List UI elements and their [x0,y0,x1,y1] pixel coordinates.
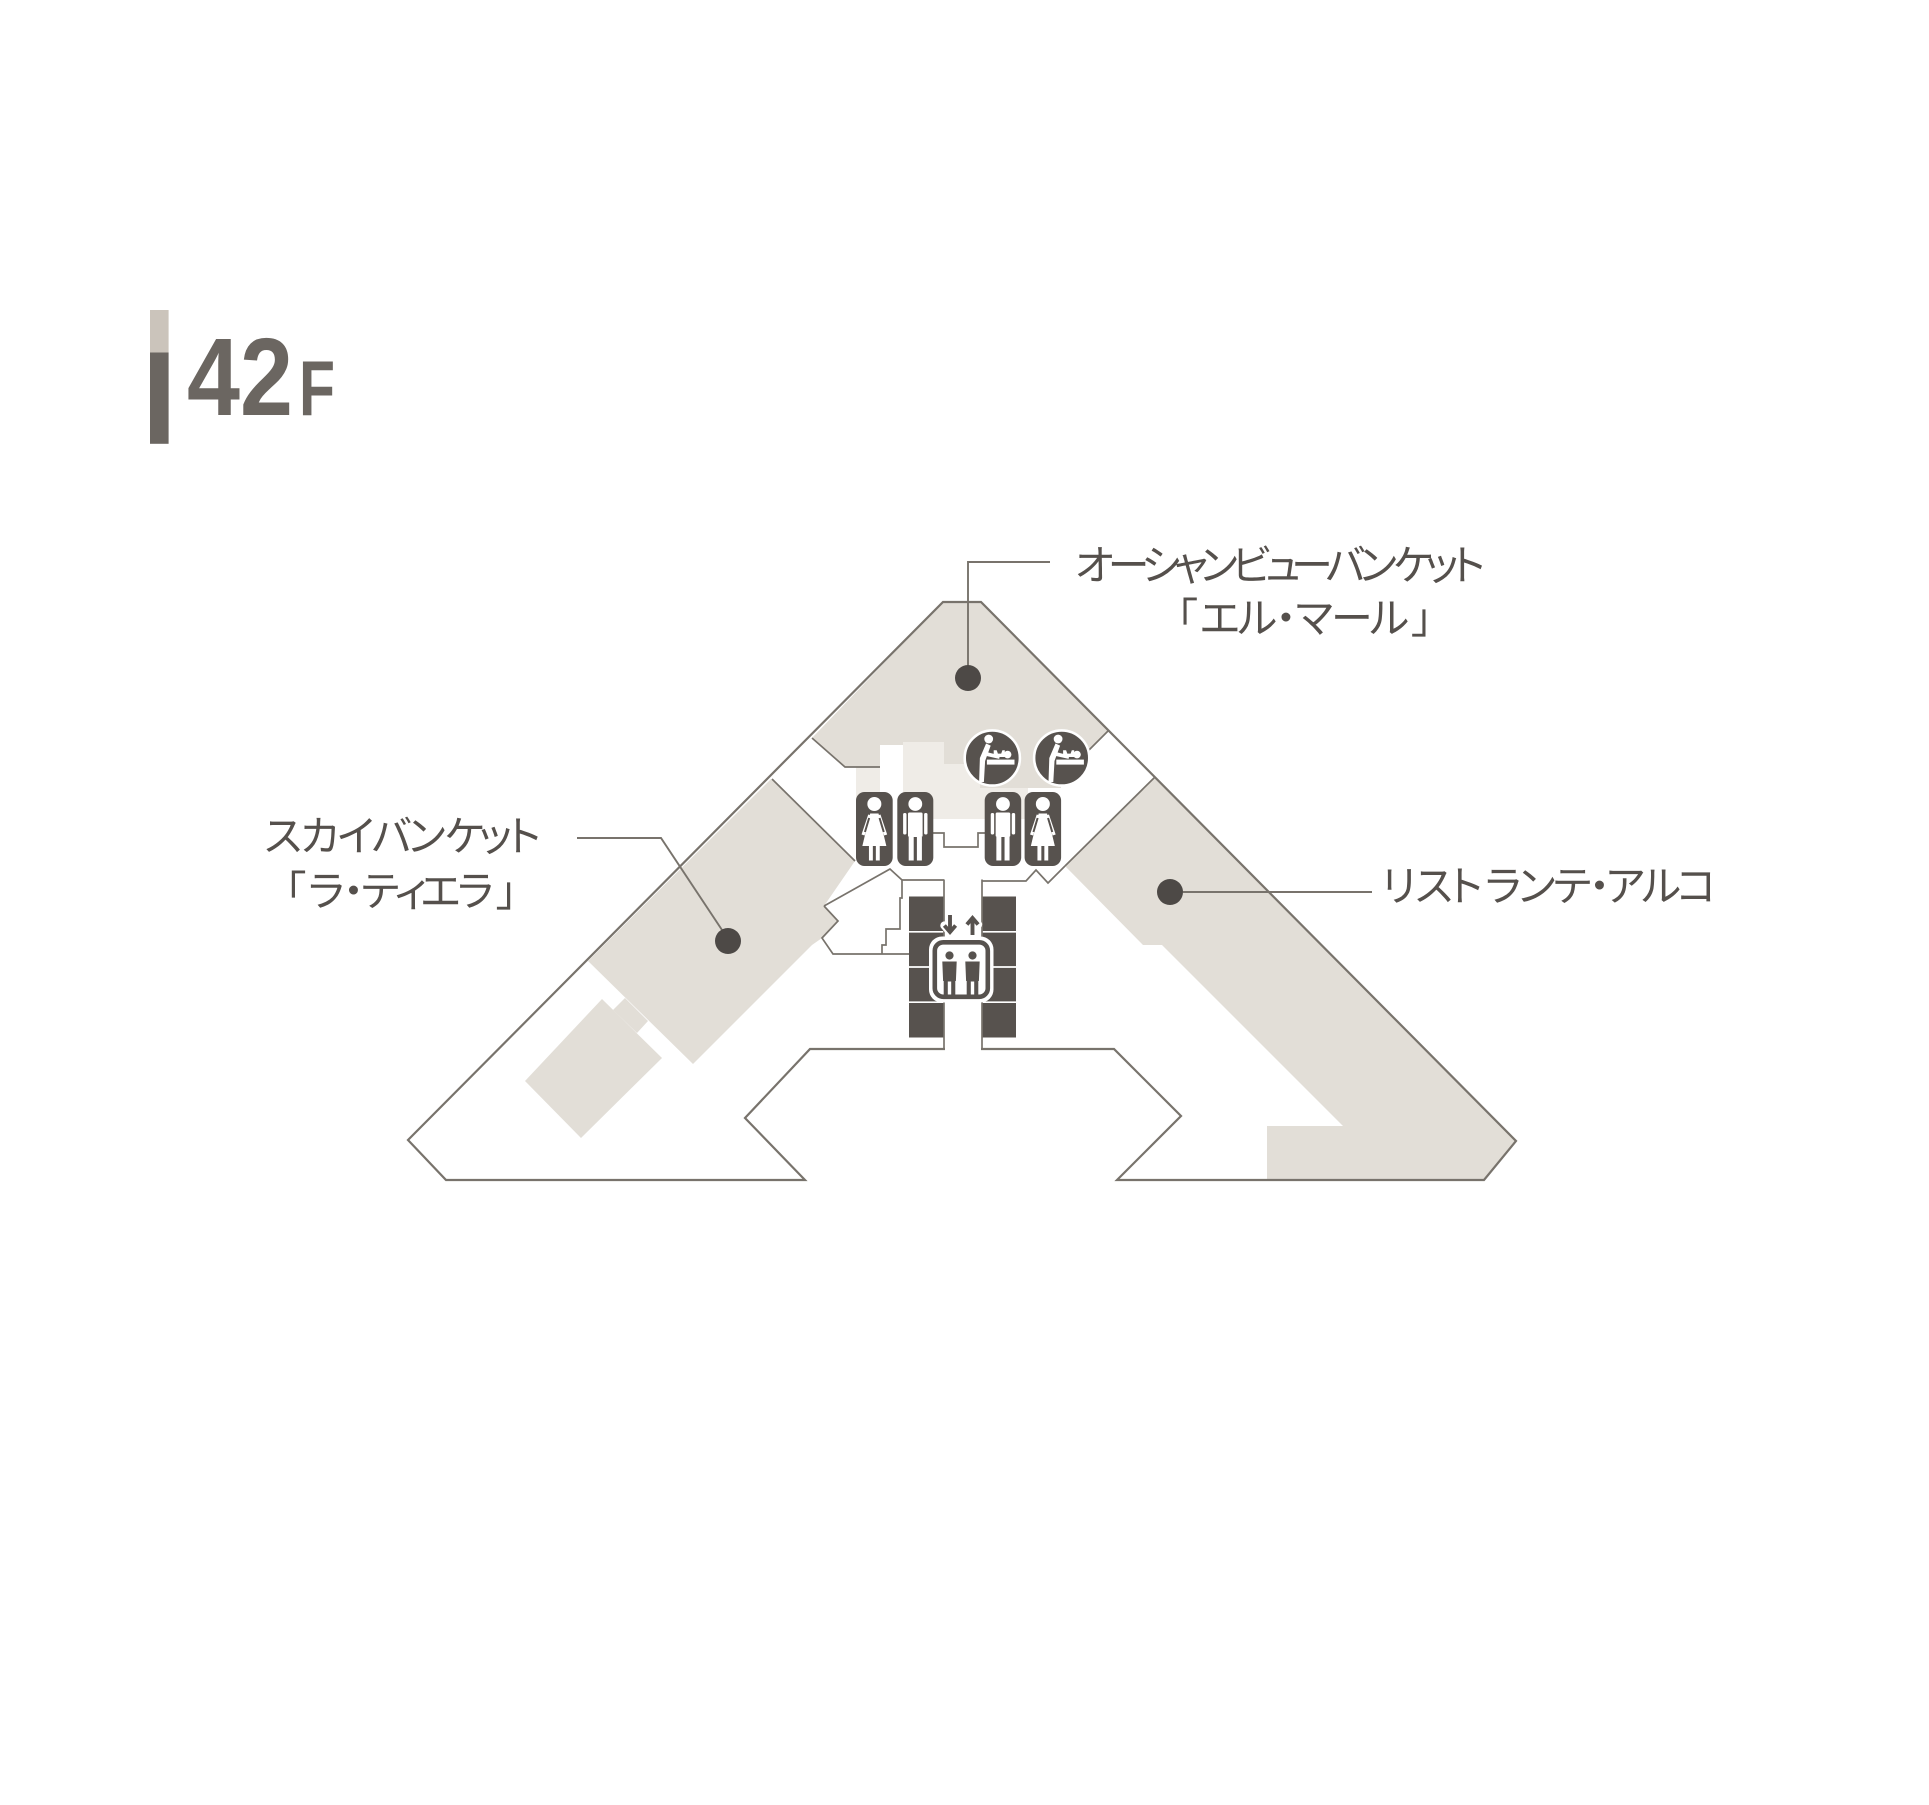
svg-text:F: F [299,344,335,432]
svg-text:42: 42 [187,316,293,439]
